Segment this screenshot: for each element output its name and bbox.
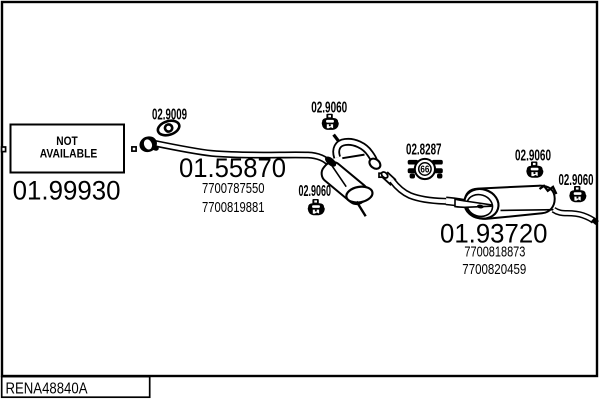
svg-text:66: 66: [420, 165, 429, 176]
svg-text:01.55870: 01.55870: [179, 153, 286, 183]
svg-text:AVAILABLE: AVAILABLE: [40, 147, 98, 161]
svg-text:7700820459: 7700820459: [462, 261, 526, 278]
svg-text:02.8287: 02.8287: [406, 141, 442, 158]
svg-text:RENA48840A: RENA48840A: [6, 381, 89, 398]
svg-text:02.9060: 02.9060: [299, 183, 332, 200]
svg-text:7700819881: 7700819881: [202, 199, 265, 216]
svg-text:01.99930: 01.99930: [13, 176, 121, 206]
svg-text:7700818873: 7700818873: [464, 244, 525, 261]
svg-text:7700787550: 7700787550: [202, 180, 265, 197]
